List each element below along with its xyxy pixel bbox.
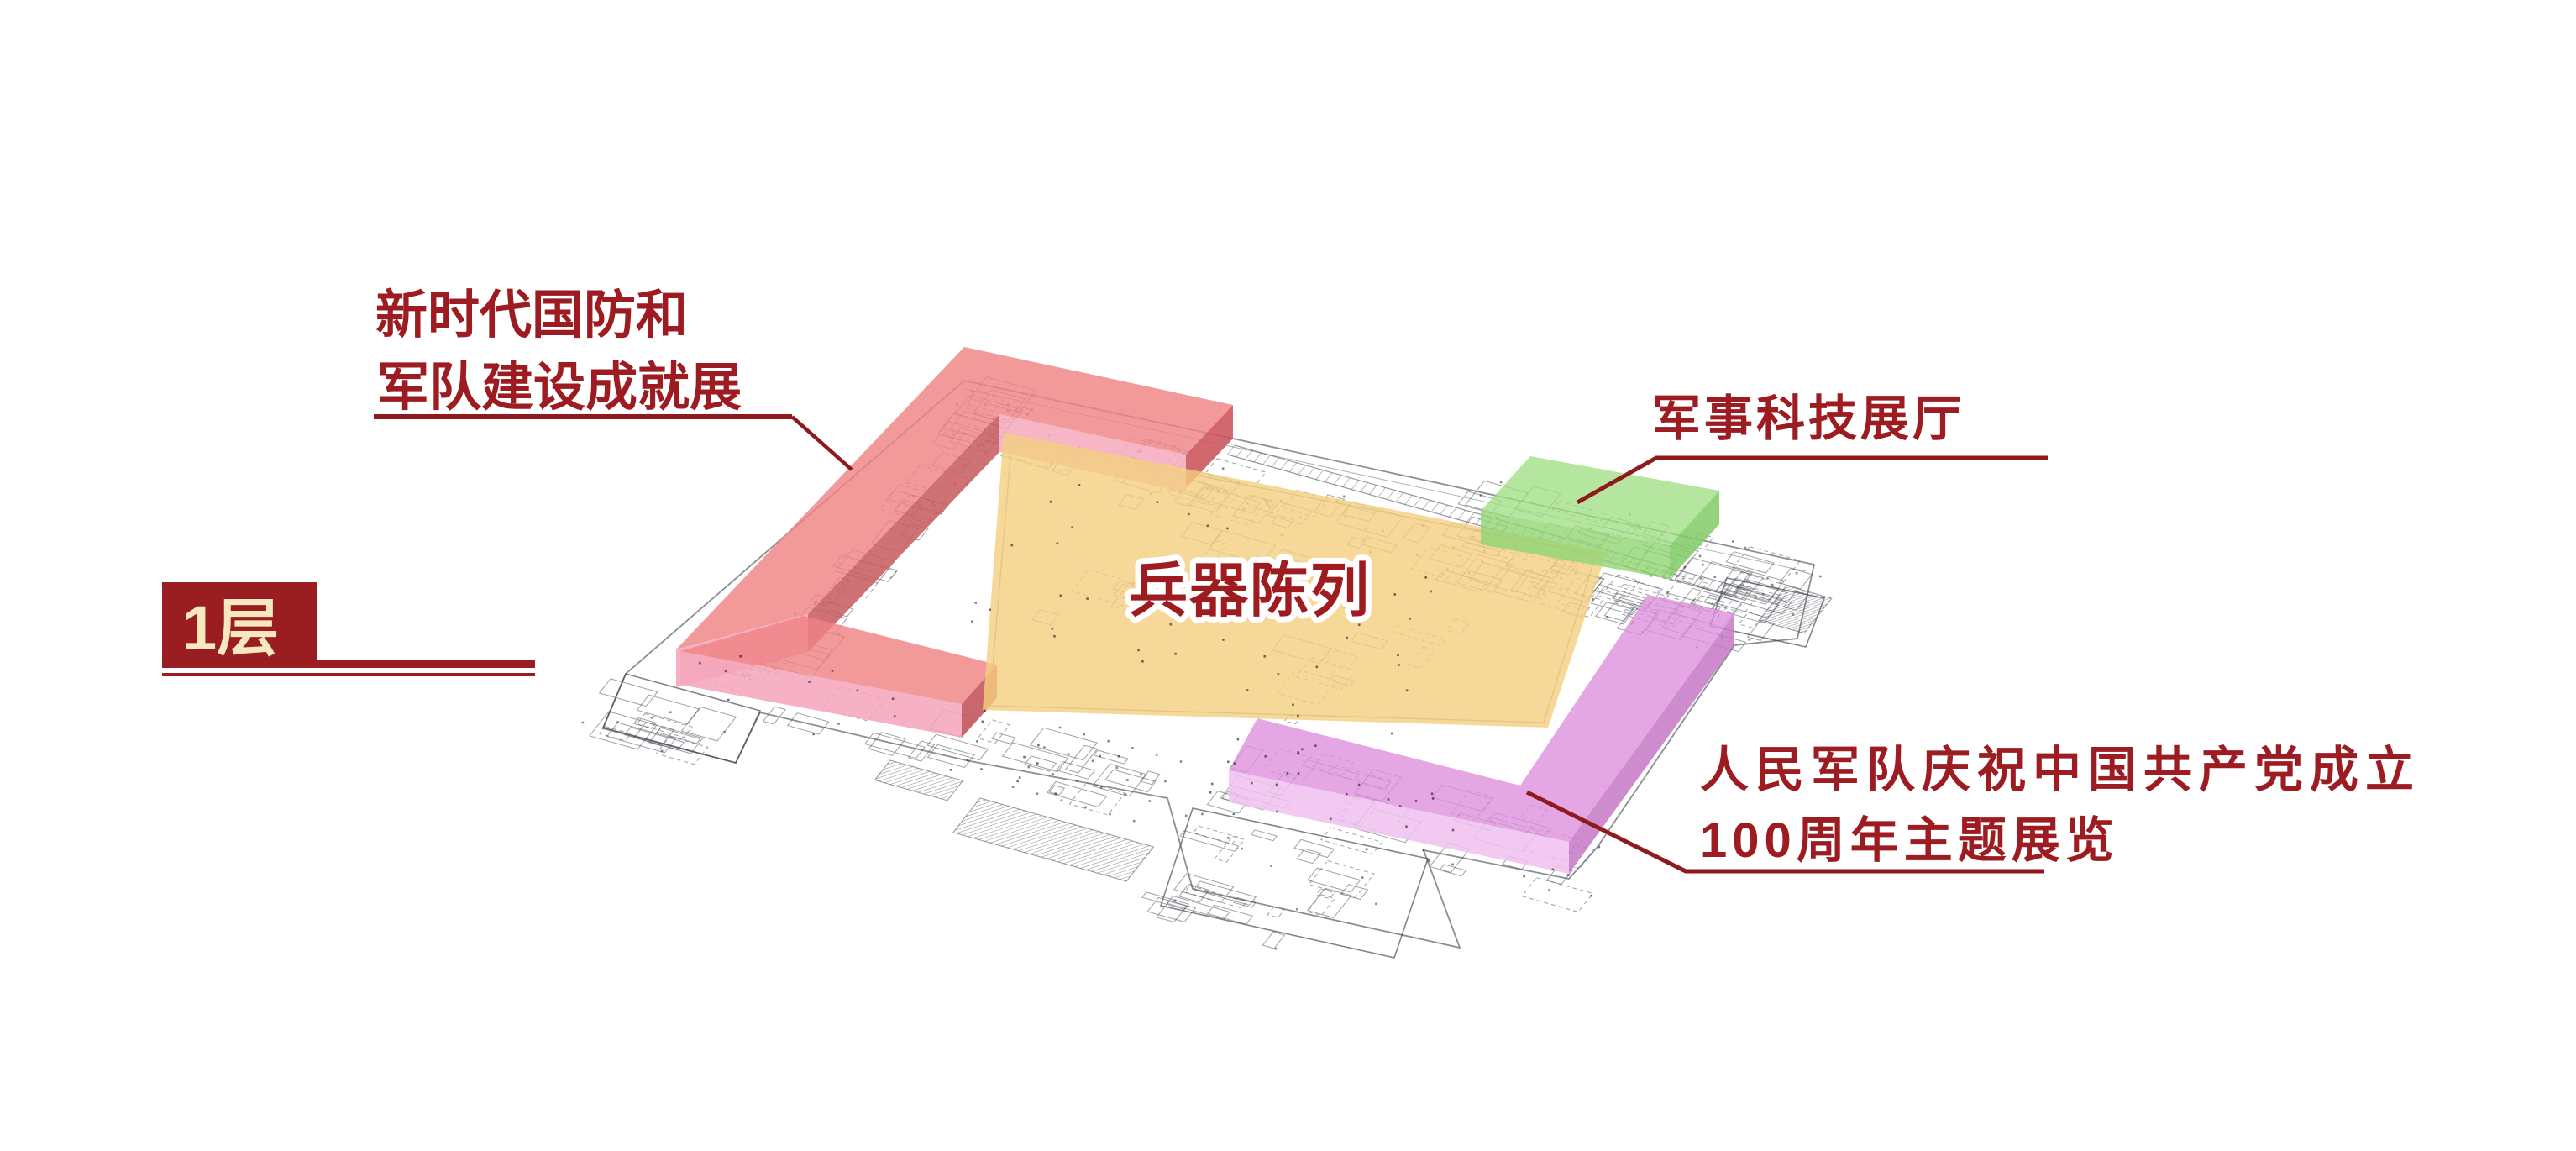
entrance-steps-hatch [957,811,1026,833]
column-dot [1226,528,1229,530]
plan-room [1141,771,1160,785]
column-dot [1170,623,1173,626]
column-dot [980,768,983,770]
corridor-tick [1423,500,1430,509]
label-defense-underline [374,414,792,419]
column-dot [1699,555,1702,558]
column-dot [1156,754,1158,756]
column-dot [1023,756,1026,759]
column-dot [1296,908,1298,911]
column-dot [1700,577,1702,580]
corridor-tick [1298,465,1306,475]
column-dot [894,715,896,717]
column-dot [974,602,977,604]
column-dot [1068,753,1070,755]
side-steps-hatch [884,770,924,782]
label-tech-text: 军事科技展厅 [1652,392,1965,446]
entrance-steps-hatch [1086,849,1152,870]
column-dot [1480,494,1482,497]
column-dot [1361,876,1364,879]
column-dot [1185,815,1188,817]
entrance-steps-hatch [958,807,1014,826]
column-dot [1251,782,1253,785]
column-dot [669,711,672,713]
column-dot [1233,812,1236,815]
column-dot [1275,948,1278,950]
side-steps-hatch [876,767,913,779]
column-dot [1131,747,1134,749]
column-dot [1278,673,1280,675]
column-dot [1702,564,1704,566]
corridor-tick [1715,582,1723,591]
column-dot [1086,597,1089,600]
column-dot [1053,635,1056,638]
column-dot [1287,772,1289,775]
plan-room [992,733,1015,744]
column-dot [1744,547,1747,549]
column-dot [1316,665,1319,668]
column-dot [1116,767,1119,770]
side-steps-hatch [924,781,963,794]
label-centenary-line1: 人民军队庆祝中国共产党成立 [1700,743,2421,797]
column-dot [699,662,701,665]
column-dot [1227,761,1230,764]
column-dot [1019,776,1021,779]
column-dot [1099,755,1101,758]
column-dot [812,733,815,736]
column-dot [1109,813,1111,816]
column-dot [982,721,984,723]
floor-badge: 1层 [162,582,535,676]
column-dot [1748,639,1750,641]
side-steps-hatch [947,800,948,801]
column-dot [1393,593,1396,596]
column-dot [1548,889,1550,891]
label-weapons-display: 兵器陈列 [1129,558,1371,623]
entrance-steps-hatch [962,812,1031,835]
column-dot [1423,849,1425,852]
column-dot [1523,875,1525,878]
corridor-tick [1281,460,1288,470]
plan-room [978,720,1010,744]
entrance-steps-hatch [968,814,1036,837]
column-dot [1237,738,1240,741]
column-dot [1222,467,1225,470]
column-dot [1592,598,1594,601]
plan-room [1167,896,1230,920]
column-dot [989,608,991,611]
plan-room [927,734,988,759]
column-dot [1298,772,1300,775]
column-dot [650,717,653,719]
plan-room [1522,878,1592,912]
column-dot [1211,783,1214,786]
column-dot [1092,759,1094,762]
label-defense-line2: 军队建设成就展 [377,359,742,417]
entrance-steps-hatch [1125,880,1127,881]
corridor-tick [1263,455,1271,465]
corridor-tick [1369,486,1377,495]
column-dot [1451,864,1454,866]
column-dot [1036,762,1039,765]
column-dot [1010,544,1013,547]
column-dot [1180,760,1183,763]
entrance-steps-hatch [1041,834,1110,857]
side-steps-hatch [901,775,941,787]
corridor-tick [1387,490,1394,499]
corridor-tick [1272,458,1279,467]
column-dot [1397,654,1399,656]
column-dot [1227,837,1230,839]
entrance-steps-hatch [996,822,1065,844]
corridor-tick [1245,450,1252,460]
label-defense-line1: 新时代国防和 [375,286,688,344]
corridor-tick [1351,481,1359,490]
plan-room [634,718,656,729]
entrance-steps-hatch [962,806,1008,821]
corridor-tick [1307,468,1314,477]
column-dot [832,670,834,672]
plan-room [1031,728,1098,759]
entrance-steps-hatch [1063,841,1132,864]
label-defense-leader-line [792,417,852,470]
entrance-steps-hatch [984,819,1053,842]
column-dot [1107,740,1110,743]
column-dot [1071,526,1073,528]
column-dot [1050,501,1052,503]
corridor-tick [1414,497,1421,507]
corridor-tick [1707,580,1714,589]
column-dot [1241,848,1243,850]
column-dot [1264,755,1267,758]
column-dot [1346,793,1348,796]
entrance-steps-hatch [955,809,1020,830]
corridor-tick [1405,495,1413,504]
column-dot [1432,797,1435,800]
entrance-steps-hatch [966,805,1003,817]
column-dot [1796,572,1798,575]
column-dot [1452,829,1455,832]
column-dot [725,670,727,673]
column-dot [1732,540,1734,543]
entrance-steps-hatch [1036,833,1104,856]
column-dot [837,723,840,725]
column-dot [1174,653,1177,655]
column-dot [1059,727,1062,729]
column-dot [1428,859,1430,862]
floor-badge-text: 1层 [182,593,279,663]
corridor-tick [1431,502,1439,512]
plan-room [1251,830,1278,841]
column-dot [1118,755,1120,758]
corridor-tick [1440,505,1448,514]
column-dot [1606,616,1608,618]
column-dot [1405,825,1408,828]
column-dot [984,710,986,712]
floor-plan-stage: 新时代国防和 军队建设成就展 军事科技展厅 人民军队庆祝中国共产党成立 100周… [0,0,2576,1151]
column-dot [1343,496,1346,498]
column-dot [1375,903,1377,906]
corridor-tick [1343,478,1351,487]
column-dot [1430,591,1432,593]
column-dot [1222,639,1225,641]
column-dot [1391,733,1393,735]
column-dot [661,750,664,753]
plan-room [1057,762,1095,780]
plan-room [1180,831,1239,852]
column-dot [1054,792,1057,795]
column-dot [1263,655,1266,658]
entrance-steps-hatch [1069,843,1138,865]
column-dot [1140,774,1142,776]
corridor-tick [1254,453,1262,462]
plan-room [1297,849,1320,863]
side-steps-hatch [879,768,918,780]
column-dot [1819,575,1822,578]
column-dot [1388,798,1390,801]
entrance-steps-hatch [973,816,1042,838]
column-dot [1346,637,1348,639]
label-defense-exhibition: 新时代国防和 军队建设成就展 [374,286,852,470]
entrance-steps-hatch [1052,838,1121,860]
column-dot [1126,779,1129,781]
column-dot [1301,749,1304,751]
plan-room [1780,569,1813,589]
column-dot [1037,744,1040,747]
column-dot [1125,793,1127,796]
column-dot [1713,575,1716,578]
floor-badge-rule-thick [162,660,535,668]
corridor-tick [1334,476,1341,485]
column-dot [1028,766,1031,769]
entrance-steps-hatch [1075,844,1144,867]
column-dot [1100,786,1103,789]
column-dot [1598,846,1601,849]
plan-room [1194,881,1256,905]
column-dot [1500,481,1503,484]
entrance-steps-hatch [990,820,1059,843]
column-dot [1292,704,1294,707]
entrance-steps-hatch [1001,823,1070,846]
column-dot [976,740,978,743]
column-dot [1016,780,1019,782]
side-steps-hatch [890,771,930,784]
plan-room [637,714,692,738]
column-dot [582,722,585,724]
plan-room [600,679,658,707]
corridor-tick [1458,510,1466,519]
column-dot [1683,566,1686,569]
plan-room [656,737,707,765]
label-centenary-exhibition: 人民军队庆祝中国共产党成立 100周年主题展览 [1527,743,2421,871]
entrance-steps-hatch [1047,836,1115,859]
column-dot [1431,792,1434,795]
column-dot [1567,874,1570,876]
column-dot [1666,591,1669,594]
entrance-steps-hatch [1103,862,1141,875]
plan-room [1308,868,1361,892]
entrance-steps-hatch [1092,853,1149,871]
column-dot [857,689,859,691]
column-dot [1052,628,1054,630]
column-dot [967,759,969,762]
entrance-steps-hatch [1024,830,1093,853]
column-dot [1551,869,1554,871]
entrance-steps-hatch [1030,832,1099,854]
entrance-steps-hatch [1007,825,1076,848]
plan-room [1731,547,1800,584]
column-dot [1060,595,1062,597]
column-dot [739,655,742,658]
column-dot [1246,689,1249,691]
side-steps [874,760,963,801]
corridor-tick [1316,470,1324,480]
column-dot [1052,773,1054,775]
floor-plan-svg: 新时代国防和 军队建设成就展 军事科技展厅 人民军队庆祝中国共产党成立 100周… [0,0,2576,1151]
entrance-steps-hatch [1013,827,1082,849]
column-dot [1771,584,1774,586]
column-dot [1149,800,1152,802]
column-dot [1415,800,1418,802]
column-dot [1766,577,1769,580]
column-dot [1209,791,1212,794]
corridor-tick [1742,590,1750,599]
column-dot [1174,900,1177,902]
corridor-tick [1236,448,1244,457]
plan-room [1179,885,1209,902]
column-dot [1358,784,1361,786]
column-dot [1057,543,1059,545]
column-dot [1061,800,1063,802]
corridor-tick [1325,473,1332,482]
column-dot [1399,805,1402,807]
column-dot [1076,780,1078,782]
column-dot [1314,744,1317,747]
column-dot [1188,513,1190,516]
column-dot [1358,624,1361,627]
column-dot [1406,690,1409,692]
side-steps-hatch [895,773,935,786]
plan-room [868,733,905,756]
column-dot [892,697,895,700]
side-steps-hatch [913,778,952,791]
column-dot [971,620,973,623]
column-dot [1297,715,1299,717]
corridor-tick [1378,487,1386,497]
column-dot [1084,807,1087,809]
column-dot [1591,895,1593,897]
corridor-tick [1396,492,1403,502]
plan-room [1592,586,1646,614]
plan-room [865,733,925,758]
column-dot [1164,780,1167,783]
column-dot [1366,849,1368,851]
column-dot [1398,664,1400,666]
plan-room [1263,932,1285,949]
column-dot [723,731,726,733]
floor-badge-rule-thin [162,673,535,676]
side-steps-hatch [907,776,947,789]
column-dot [1078,484,1081,486]
east-hatch-block-hatch [1772,607,1824,624]
column-dot [1083,733,1086,736]
entrance-steps-hatch [1058,839,1127,862]
corridor-tick [1449,507,1456,517]
column-dot [1141,660,1144,663]
column-dot [1201,813,1204,816]
column-dot [1297,751,1299,754]
entrance-steps-hatch [978,817,1047,840]
column-dot [1043,746,1046,749]
column-dot [1409,618,1411,620]
east-hatch-block-hatch [1763,596,1823,615]
column-dot [1330,817,1332,820]
column-dot [950,769,952,771]
side-steps-hatch [918,780,957,792]
column-dot [1424,576,1427,579]
entrance-steps-hatch [1098,858,1146,874]
corridor-tick [1289,463,1297,472]
column-dot [1276,784,1278,786]
column-dot [1036,792,1039,795]
column-dot [1012,786,1015,788]
entrance-steps-hatch [1019,828,1088,851]
column-dot [1234,762,1236,765]
column-dot [1270,865,1272,867]
column-dot [616,721,619,723]
column-dot [1137,649,1140,652]
column-dot [1276,811,1278,813]
column-dot [1157,501,1159,503]
column-dot [727,699,730,702]
label-centenary-line2: 100周年主题展览 [1700,813,2119,868]
column-dot [1133,820,1136,823]
corridor-tick [1361,483,1368,492]
column-dot [808,681,811,683]
column-dot [1207,524,1209,527]
